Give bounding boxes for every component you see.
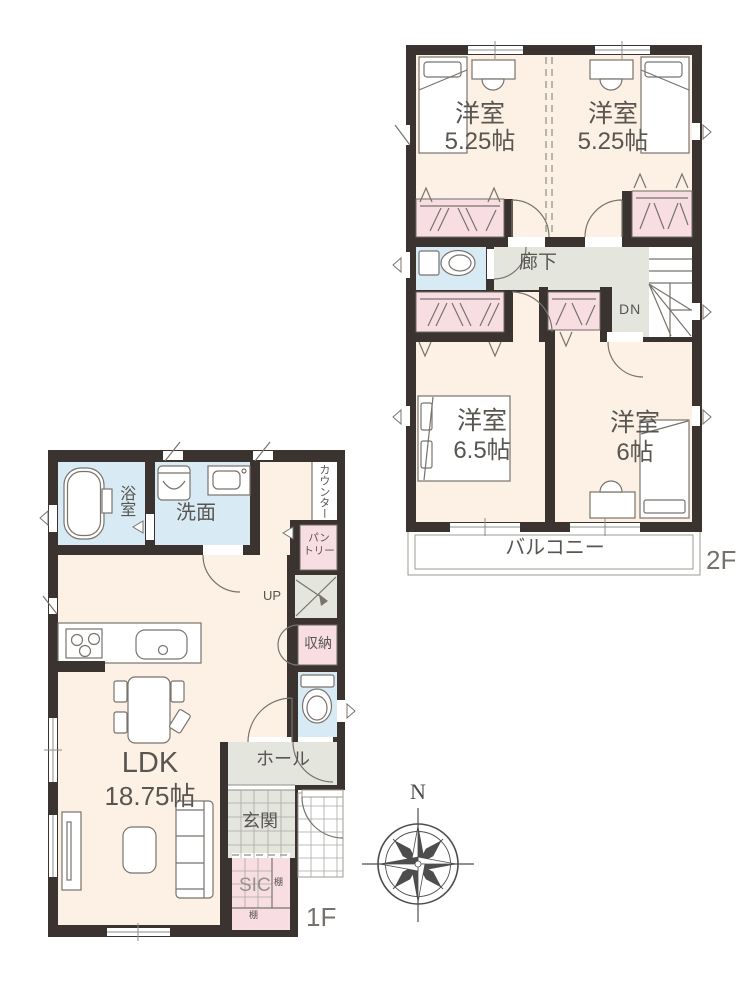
coffee-table-icon [123, 827, 156, 873]
storage-label: 収納 [301, 636, 335, 651]
ldk-label: LDK [95, 748, 205, 779]
sofa-icon [176, 801, 213, 898]
pantry-label: パントリー [299, 532, 339, 558]
entrance-porch [298, 790, 343, 877]
entrance-label: 玄関 [242, 812, 278, 831]
floor2-tag: 2F [706, 546, 736, 574]
washer-icon [158, 466, 190, 500]
front-door-leaf [302, 790, 343, 797]
kitchen-half-wall [48, 661, 105, 672]
floor-plan-page: 洋室 5.25帖 洋室 5.25帖 廊下 DN 洋室 6.5帖 洋室 6帖 バル… [0, 0, 750, 1000]
sink-icon [208, 466, 250, 495]
compass-north-label: N [400, 780, 436, 804]
hallway-label: 廊下 [498, 253, 578, 274]
room-b-label: 洋室 [563, 101, 663, 128]
stairs-down-label: DN [619, 302, 641, 317]
closet-room-c [416, 292, 504, 332]
bath-label: 浴室 [117, 485, 134, 545]
room-d-size: 6帖 [589, 440, 681, 466]
stairs-up-label: UP [263, 589, 281, 603]
sic-label: SIC [239, 876, 271, 897]
tv-board-icon [62, 812, 81, 890]
room-a-size: 5.25帖 [422, 129, 538, 155]
ldk-size: 18.75帖 [85, 782, 215, 810]
balcony-label: バルコニー [455, 538, 655, 560]
toilet-icon-2f [419, 251, 475, 276]
closet-room-a [416, 199, 504, 237]
room-d-label: 洋室 [585, 410, 685, 437]
room-c-size: 6.5帖 [428, 438, 536, 464]
compass-rose [362, 808, 474, 922]
room-b-size: 5.25帖 [555, 129, 671, 155]
toilet-icon-1f [301, 675, 334, 723]
shelf-right-label: 棚 [274, 878, 283, 888]
room-c-label: 洋室 [432, 408, 532, 435]
floor1-tag: 1F [306, 903, 336, 931]
room-a-label: 洋室 [430, 101, 530, 128]
shelf-bottom-label: 棚 [249, 911, 258, 921]
washroom-label: 洗面 [176, 503, 216, 525]
hall-label: ホール [238, 750, 328, 769]
